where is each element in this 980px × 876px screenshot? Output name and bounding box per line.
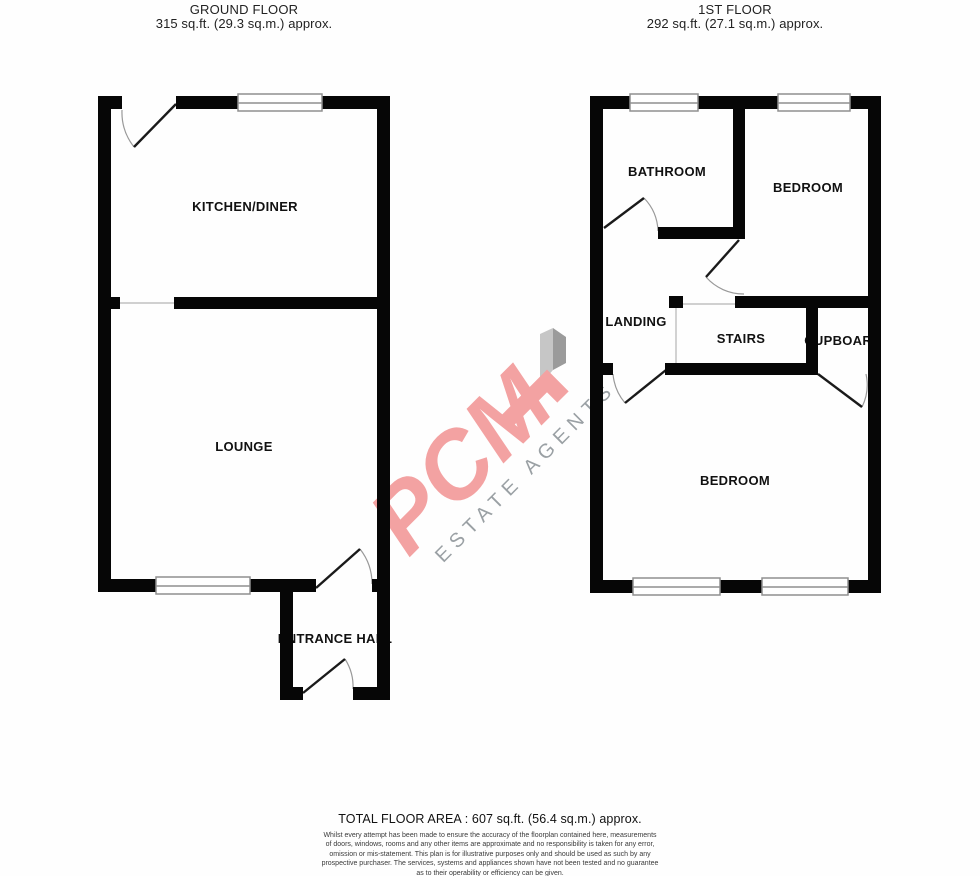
hall-wall-left — [280, 579, 293, 700]
ff-wall-bath-divider — [733, 109, 745, 239]
ff-wall-top-1 — [590, 96, 630, 109]
disclaimer-line: prospective purchaser. The services, sys… — [0, 859, 980, 868]
gf-wall-bottom-1 — [98, 579, 156, 592]
ff-wall-bottom-2 — [720, 580, 762, 593]
ff-wall-stairs-bottom — [665, 363, 818, 375]
footer: TOTAL FLOOR AREA : 607 sq.ft. (56.4 sq.m… — [0, 812, 980, 876]
ff-wall-top-2 — [698, 96, 778, 109]
gf-wall-top-2 — [176, 96, 238, 109]
door-leaf-bedroom-front — [706, 240, 739, 277]
ff-wall-bedroom-bottom — [735, 296, 881, 308]
hall-wall-right — [377, 592, 390, 700]
gf-wall-divider-stub — [98, 297, 120, 309]
disclaimer-line: omission or mis-statement. This plan is … — [0, 850, 980, 859]
ff-wall-bath-bottom — [658, 227, 745, 239]
label-bedroom-back: BEDROOM — [700, 473, 770, 488]
label-lounge: LOUNGE — [215, 439, 272, 454]
disclaimer-line: Whilst every attempt has been made to en… — [0, 831, 980, 840]
ff-wall-landing-stub — [603, 363, 613, 375]
gf-wall-bottom-3 — [372, 579, 390, 592]
hall-wall-bottom-2 — [353, 687, 390, 700]
floorplans: KITCHEN/DINER LOUNGE ENTRANCE HALL BATHR… — [0, 0, 980, 876]
label-landing: LANDING — [605, 314, 666, 329]
door-arc-bedroom-front — [706, 277, 744, 294]
label-kitchen-diner: KITCHEN/DINER — [192, 199, 298, 214]
floorplan-page: GROUND FLOOR 315 sq.ft. (29.3 sq.m.) app… — [0, 0, 980, 876]
ff-wall-cupboard-divider — [806, 308, 818, 363]
ff-wall-bottom-3 — [848, 580, 881, 593]
total-floor-area: TOTAL FLOOR AREA : 607 sq.ft. (56.4 sq.m… — [0, 812, 980, 826]
room-landing — [603, 239, 676, 363]
gf-wall-divider — [174, 297, 390, 309]
ff-wall-bottom-1 — [590, 580, 633, 593]
label-stairs: STAIRS — [717, 331, 766, 346]
label-bathroom: BATHROOM — [628, 164, 706, 179]
label-bedroom-front: BEDROOM — [773, 180, 843, 195]
hall-wall-bottom-1 — [280, 687, 303, 700]
label-entrance-hall: ENTRANCE HALL — [278, 631, 392, 646]
disclaimer-line: as to their operability or efficiency ca… — [0, 869, 980, 876]
ff-wall-left — [590, 96, 603, 593]
gf-wall-right — [377, 96, 390, 592]
room-bedroom-front — [745, 109, 868, 296]
gf-wall-top-1 — [98, 96, 122, 109]
ff-wall-right — [868, 96, 881, 593]
disclaimer: Whilst every attempt has been made to en… — [0, 831, 980, 876]
ff-wall-stairs-stub — [669, 296, 683, 308]
disclaimer-line: of doors, windows, rooms and any other i… — [0, 840, 980, 849]
gf-wall-left — [98, 96, 111, 592]
